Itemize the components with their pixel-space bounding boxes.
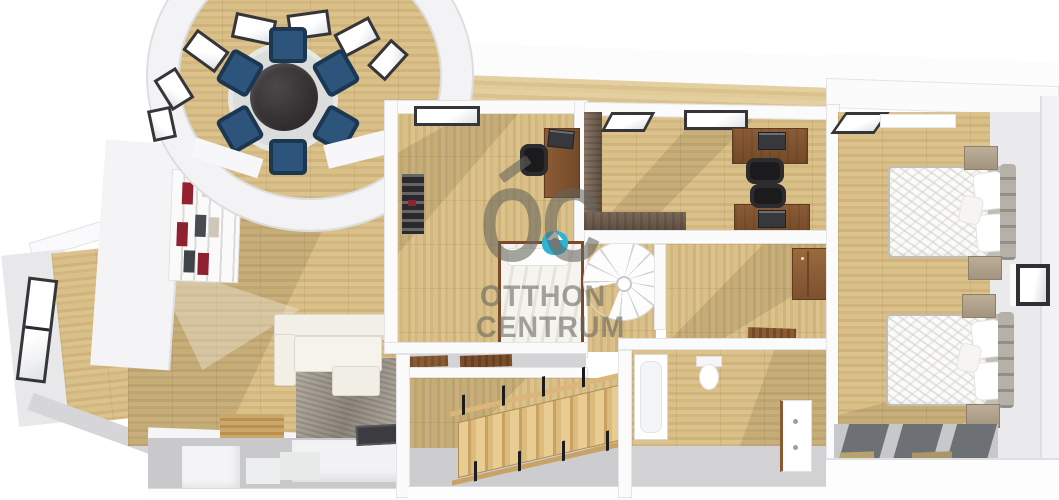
- baluster: [518, 451, 521, 472]
- sofa: [274, 314, 400, 396]
- stairwell-left-wall: [396, 354, 410, 498]
- book-dark: [195, 215, 207, 237]
- teal-chair: [542, 231, 568, 255]
- baluster: [562, 441, 565, 462]
- living-office-wall: [384, 100, 398, 354]
- double-bed-top: [888, 166, 1016, 258]
- nightstand: [964, 146, 998, 170]
- dining-chair: [269, 27, 307, 63]
- office-right-window: [684, 110, 748, 130]
- nightstand: [962, 294, 996, 318]
- bathroom-fascia: [632, 486, 840, 500]
- bay-window-crossbar: [25, 326, 49, 332]
- bedroom-rug-stripe: [947, 424, 997, 460]
- bathtub-basin: [640, 361, 662, 433]
- toilet: [696, 356, 720, 390]
- office-left-monitor: [547, 129, 575, 150]
- toilet-bowl: [699, 364, 719, 390]
- bed-headboard: [1000, 164, 1016, 260]
- bathtub: [634, 354, 668, 440]
- baluster: [502, 385, 505, 406]
- book-red: [197, 253, 209, 275]
- landing-doormat: [460, 354, 512, 368]
- kitchen-counter: [280, 452, 320, 480]
- bedroom-fascia: [826, 458, 1059, 500]
- office-hallway-wall: [584, 230, 828, 244]
- kitchen-counter: [182, 446, 240, 490]
- spiral-center-post: [616, 276, 632, 292]
- baluster: [462, 394, 465, 415]
- sofa-chaise: [332, 366, 380, 396]
- bathroom-top-wall: [618, 338, 840, 350]
- spiral-landing-right-wall: [654, 244, 666, 330]
- vanity-faucet: [793, 445, 798, 450]
- single-bed: [498, 241, 584, 357]
- cabinet-panel-line: [807, 251, 809, 297]
- office-left-window: [414, 106, 480, 126]
- baluster: [606, 430, 609, 451]
- bathroom-vanity: [780, 400, 812, 472]
- book-red: [176, 222, 188, 246]
- baluster: [474, 461, 477, 482]
- monitor-bottom: [758, 210, 786, 228]
- cabinet-knob: [801, 257, 804, 260]
- monitor-top: [758, 132, 786, 150]
- bedroom-side-window: [1016, 264, 1050, 306]
- knee-wall-horizontal: [584, 212, 686, 232]
- teal-chair-cushion: [551, 238, 559, 250]
- wall-rack: [402, 174, 424, 234]
- rack-red-item: [408, 200, 416, 206]
- baluster: [542, 376, 545, 397]
- sofa-arm-left: [274, 334, 296, 386]
- bedroom-window-strip: [880, 114, 956, 128]
- office-chair-bottom: [750, 184, 786, 208]
- book-red: [182, 182, 194, 204]
- book-beige: [209, 217, 220, 237]
- bed-headboard: [998, 312, 1014, 408]
- kitchen-wood-bar: [220, 414, 284, 438]
- baluster: [582, 367, 585, 388]
- kitchen-counter: [246, 458, 280, 484]
- vanity-faucet: [793, 419, 798, 424]
- floorplan-scene[interactable]: OC OTTHON CENTRUM: [0, 0, 1059, 500]
- bathroom-left-wall: [618, 350, 632, 498]
- nightstand: [968, 256, 1002, 280]
- office-chair-top: [746, 158, 784, 184]
- dining-chair: [269, 139, 307, 175]
- book-dark: [183, 250, 195, 272]
- double-bed-bottom: [886, 314, 1014, 406]
- landing-doormat: [406, 355, 448, 367]
- office-left-chair: [520, 144, 548, 176]
- office-left-bottom-wall: [384, 342, 588, 354]
